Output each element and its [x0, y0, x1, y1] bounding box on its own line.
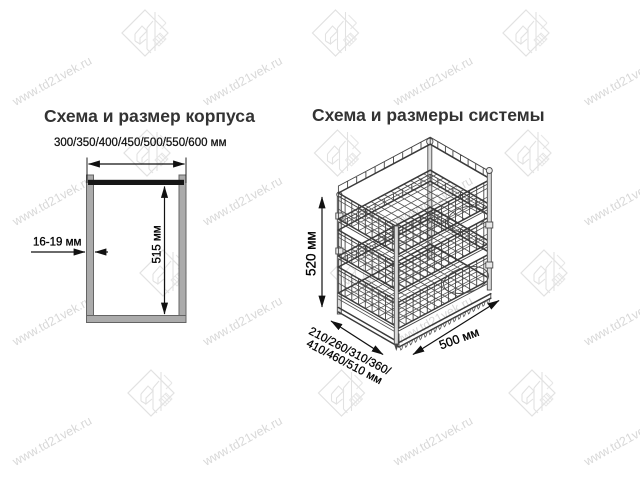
- svg-text:520 мм: 520 мм: [304, 231, 319, 276]
- svg-text:500 мм: 500 мм: [437, 325, 481, 352]
